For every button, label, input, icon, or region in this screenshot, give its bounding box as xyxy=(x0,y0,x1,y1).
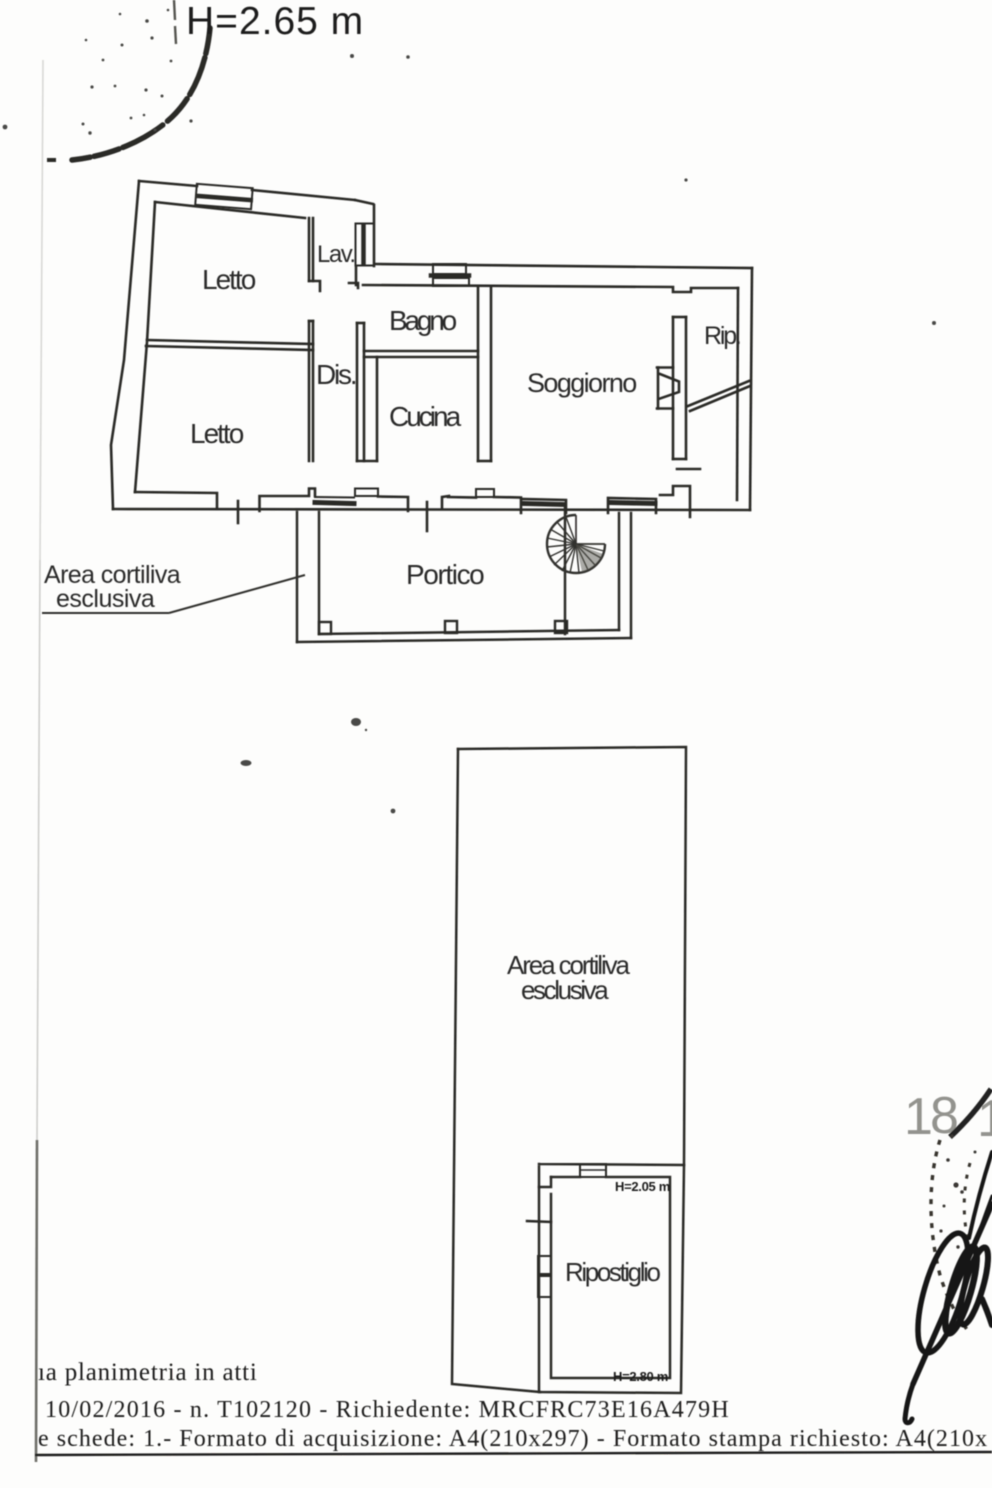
svg-text:H=2.80 m: H=2.80 m xyxy=(613,1369,668,1384)
svg-text:H=2.65 m: H=2.65 m xyxy=(186,0,364,43)
svg-text:esclusiva: esclusiva xyxy=(521,975,609,1005)
svg-text:Letto: Letto xyxy=(202,264,256,295)
svg-text:Cucina: Cucina xyxy=(389,401,462,432)
svg-text:e schede: 1.- Formato di acqui: e schede: 1.- Formato di acquisizione: A… xyxy=(38,1426,988,1452)
svg-text:Letto: Letto xyxy=(190,418,244,449)
svg-text:1: 1 xyxy=(904,1088,933,1146)
svg-text:Soggiorno: Soggiorno xyxy=(527,368,636,398)
svg-text:Dis.: Dis. xyxy=(316,359,356,390)
svg-text:H=2.05 m: H=2.05 m xyxy=(615,1179,670,1194)
svg-text:ıa planimetria in atti: ıa planimetria in atti xyxy=(38,1359,258,1386)
svg-text:Rip.: Rip. xyxy=(704,322,740,350)
svg-text:10/02/2016 - n. T102120 - Rich: 10/02/2016 - n. T102120 - Richiedente: M… xyxy=(45,1397,730,1423)
svg-text:Ripostiglio: Ripostiglio xyxy=(565,1257,660,1287)
svg-text:Portico: Portico xyxy=(406,559,484,590)
svg-text:esclusiva: esclusiva xyxy=(56,585,155,613)
svg-text:Bagno: Bagno xyxy=(389,305,457,336)
svg-text:Lav.: Lav. xyxy=(317,241,355,268)
